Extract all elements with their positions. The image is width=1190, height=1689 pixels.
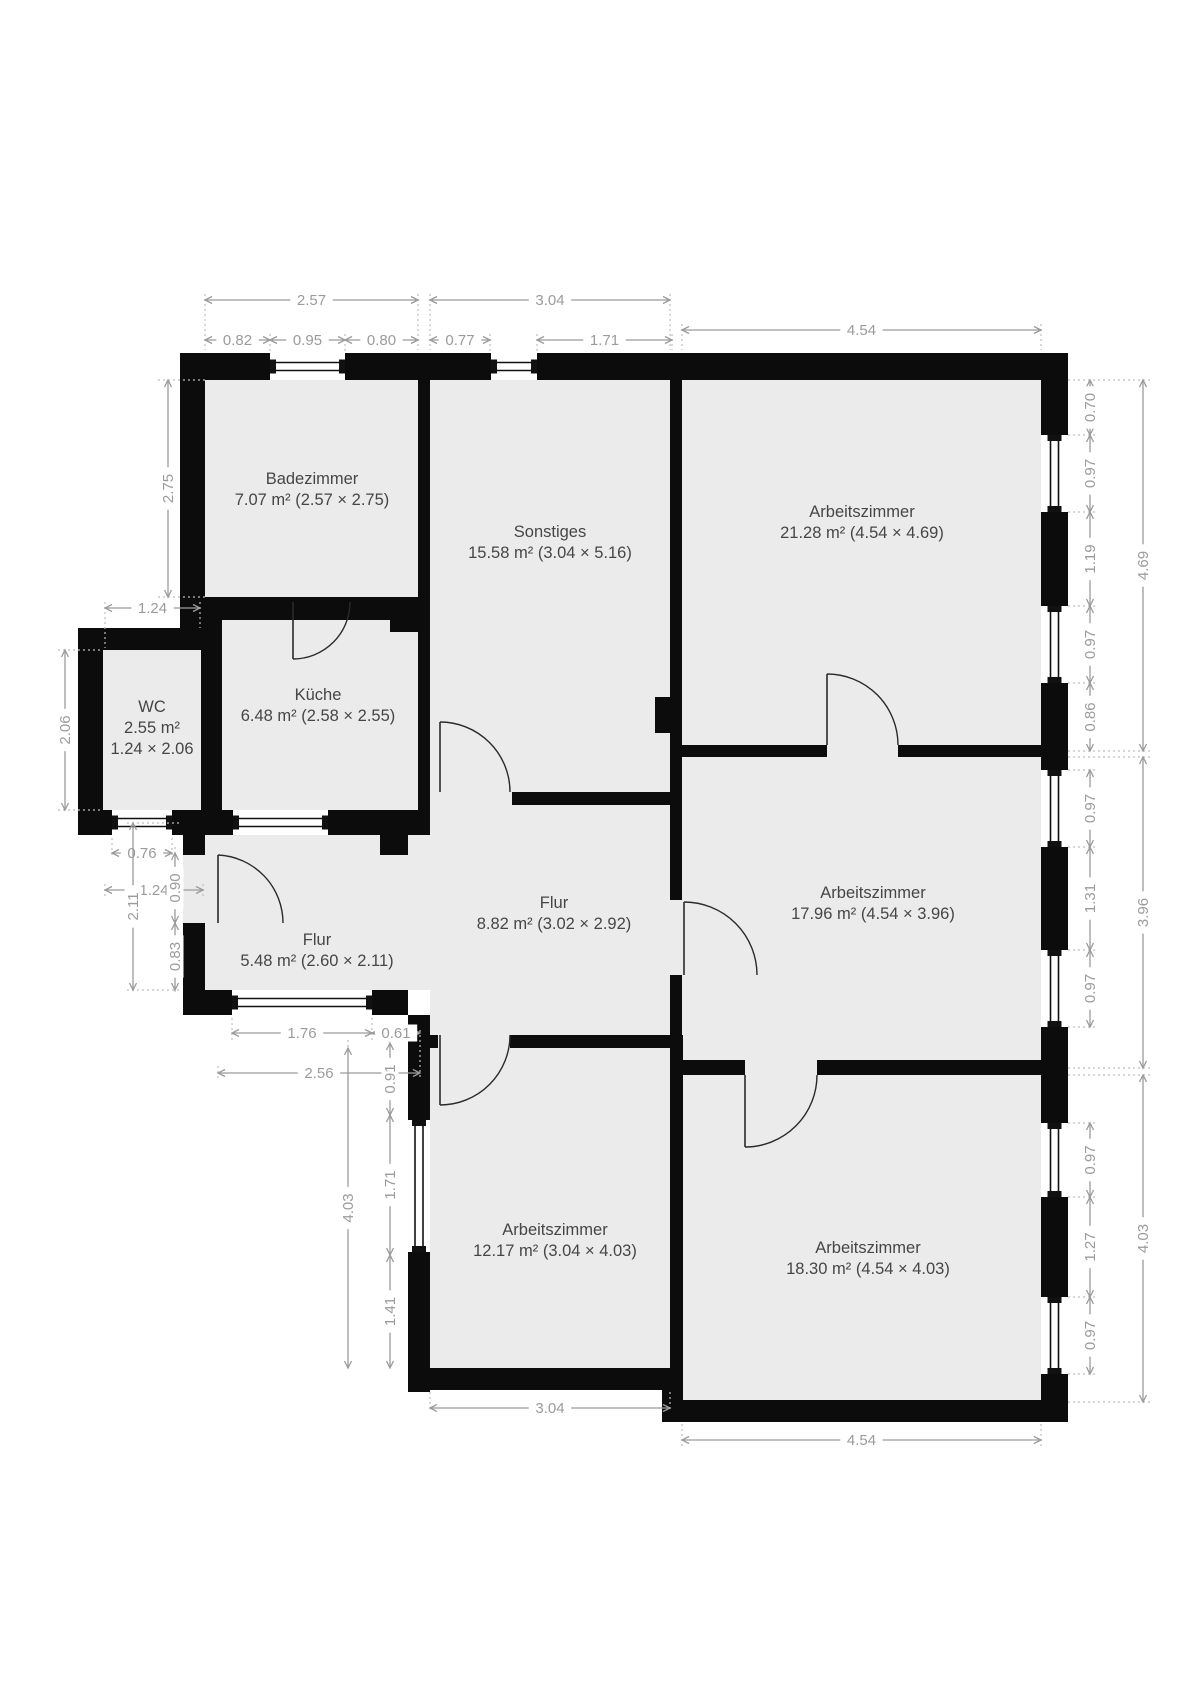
dimension-4.03: 4.03 (340, 1048, 358, 1368)
wall (1041, 353, 1068, 1422)
room-label-line: 2.55 m² (124, 719, 180, 737)
room-floor (430, 792, 512, 805)
floor-plan-svg: 2.573.044.540.820.950.800.771.710.700.97… (0, 0, 1190, 1684)
dimension-0.97: 0.97 (1082, 606, 1100, 683)
room-floor (827, 745, 898, 757)
wall (817, 1060, 1041, 1075)
room-label-line: 6.48 m² (2.58 × 2.55) (241, 707, 396, 725)
dimension-0.86: 0.86 (1082, 683, 1100, 751)
dimension-label: 0.76 (127, 845, 156, 862)
dimension-label: 4.54 (847, 1432, 876, 1449)
dimension-label: 1.76 (287, 1025, 316, 1042)
wall (418, 353, 430, 810)
dimension-label: 2.75 (160, 474, 177, 503)
wall (510, 1035, 670, 1048)
dimension-3.04: 3.04 (430, 292, 670, 310)
dimension-label: 3.04 (535, 1400, 564, 1417)
wall (201, 620, 222, 810)
window (1041, 950, 1068, 1027)
dimension-label: 0.95 (293, 332, 322, 349)
room-label-line: Arbeitszimmer (809, 503, 915, 521)
window (1041, 606, 1068, 683)
dimension-4.54: 4.54 (682, 1432, 1041, 1450)
room-label-line: WC (138, 698, 166, 716)
wall (670, 745, 827, 757)
room-floor (745, 1060, 817, 1075)
dimension-label: 0.97 (1082, 1145, 1099, 1174)
window (233, 810, 328, 835)
dimension-label: 2.56 (304, 1065, 333, 1082)
dimension-0.80: 0.80 (345, 332, 418, 350)
dimension-label: 0.80 (367, 332, 396, 349)
dimension-1.27: 1.27 (1082, 1197, 1100, 1297)
dimension-0.97: 0.97 (1082, 435, 1100, 512)
dimension-label: 2.06 (57, 715, 74, 744)
wall (380, 810, 408, 855)
dimension-0.83: 0.83 (167, 923, 185, 990)
window (1041, 770, 1068, 847)
wall (390, 612, 430, 632)
dimension-label: 1.24 (139, 882, 168, 899)
dimension-0.82: 0.82 (205, 332, 270, 350)
dimension-0.90: 0.90 (167, 853, 185, 923)
dimension-0.70: 0.70 (1082, 380, 1100, 435)
wall (512, 792, 682, 805)
window (491, 353, 537, 380)
wall (408, 1368, 683, 1390)
dimension-label: 2.11 (125, 892, 142, 920)
dimension-2.75: 2.75 (160, 380, 178, 597)
dimension-1.71: 1.71 (537, 332, 672, 350)
dimension-label: 1.71 (382, 1170, 399, 1199)
dimension-4.54: 4.54 (682, 322, 1041, 340)
dimension-0.61: 0.61 (372, 1025, 420, 1043)
dimension-1.41: 1.41 (382, 1255, 400, 1368)
dimension-label: 0.82 (223, 332, 252, 349)
dimension-1.71: 1.71 (382, 1115, 400, 1255)
room-label-line: Flur (540, 894, 569, 912)
window (1041, 1123, 1068, 1197)
window (1041, 435, 1068, 512)
wall (78, 628, 103, 835)
dimension-3.96: 3.96 (1135, 757, 1153, 1068)
dimension-4.03: 4.03 (1135, 1075, 1153, 1402)
window (270, 353, 345, 380)
wall (683, 1060, 745, 1075)
room-label-line: 18.30 m² (4.54 × 4.03) (786, 1260, 950, 1278)
dimension-2.06: 2.06 (57, 650, 75, 810)
dimension-0.97: 0.97 (1082, 1123, 1100, 1197)
dimension-label: 0.83 (167, 942, 184, 971)
dimension-label: 1.31 (1082, 884, 1099, 913)
dimension-0.97: 0.97 (1082, 770, 1100, 847)
dimension-label: 2.57 (297, 292, 326, 309)
room-floor (670, 900, 682, 975)
dimension-label: 0.97 (1082, 1321, 1099, 1350)
window (408, 1120, 430, 1252)
dimension-1.19: 1.19 (1082, 512, 1100, 606)
dimension-label: 4.03 (1135, 1224, 1152, 1253)
dimension-4.69: 4.69 (1135, 380, 1153, 751)
wall (183, 923, 205, 990)
dimension-label: 0.97 (1082, 794, 1099, 823)
window (1041, 1297, 1068, 1374)
room-label-line: Arbeitszimmer (820, 884, 926, 902)
dimension-label: 0.70 (1082, 393, 1099, 422)
dimension-label: 4.03 (340, 1193, 357, 1222)
wall (662, 1400, 1068, 1422)
dimension-label: 0.91 (382, 1064, 399, 1093)
dimension-0.91: 0.91 (382, 1043, 400, 1115)
dimension-label: 0.86 (1082, 702, 1099, 731)
room-label-line: 21.28 m² (4.54 × 4.69) (780, 524, 944, 542)
dimension-label: 0.90 (167, 873, 184, 902)
wall (898, 745, 1041, 757)
room-floor (682, 380, 1041, 745)
dimension-label: 4.69 (1135, 551, 1152, 580)
room-floor (430, 380, 670, 792)
dimension-label: 1.27 (1082, 1232, 1099, 1261)
room-floor (430, 1048, 670, 1370)
room-label-line: 15.58 m² (3.04 × 5.16) (468, 544, 632, 562)
room-floor (438, 1035, 510, 1048)
wall (183, 835, 205, 855)
dimension-0.77: 0.77 (430, 332, 490, 350)
room-label-line: 8.82 m² (3.02 × 2.92) (477, 915, 632, 933)
dimension-label: 0.77 (445, 332, 474, 349)
dimension-label: 0.61 (381, 1025, 410, 1042)
dimension-2.57: 2.57 (205, 292, 418, 310)
dimension-0.76: 0.76 (112, 845, 172, 863)
wall (670, 1035, 683, 1402)
room-label-line: Badezimmer (266, 470, 359, 488)
dimension-0.97: 0.97 (1082, 950, 1100, 1027)
dimension-1.31: 1.31 (1082, 847, 1100, 950)
room-label-line: Küche (295, 686, 342, 704)
room-label-line: 12.17 m² (3.04 × 4.03) (473, 1242, 637, 1260)
room-label-line: Sonstiges (514, 523, 586, 541)
room-label-line: 17.96 m² (4.54 × 3.96) (791, 905, 955, 923)
wall (670, 757, 682, 900)
room-label-line: 5.48 m² (2.60 × 2.11) (240, 952, 393, 970)
dimension-0.97: 0.97 (1082, 1297, 1100, 1374)
dimension-label: 3.96 (1135, 898, 1152, 927)
room-label-line: 7.07 m² (2.57 × 2.75) (235, 491, 390, 509)
dimension-label: 4.54 (847, 322, 876, 339)
dimension-label: 3.04 (535, 292, 564, 309)
dimension-label: 1.41 (382, 1297, 399, 1326)
room-label-line: 1.24 × 2.06 (110, 740, 193, 758)
room-label-line: Arbeitszimmer (815, 1239, 921, 1257)
dimension-label: 1.19 (1082, 544, 1099, 573)
floor-plan-container: 2.573.044.540.820.950.800.771.710.700.97… (0, 0, 1190, 1684)
dimension-3.04: 3.04 (430, 1400, 670, 1418)
dimension-label: 0.97 (1082, 459, 1099, 488)
dimension-1.76: 1.76 (232, 1025, 372, 1043)
wall (655, 697, 682, 733)
room-label-line: Arbeitszimmer (502, 1221, 608, 1239)
dimension-label: 0.97 (1082, 630, 1099, 659)
dimension-label: 0.97 (1082, 974, 1099, 1003)
dimension-label: 1.24 (138, 600, 167, 617)
room-floor (205, 380, 418, 597)
room-label-line: Flur (303, 931, 332, 949)
dimension-label: 1.71 (590, 332, 619, 349)
dimension-0.95: 0.95 (270, 332, 345, 350)
window (232, 990, 372, 1015)
